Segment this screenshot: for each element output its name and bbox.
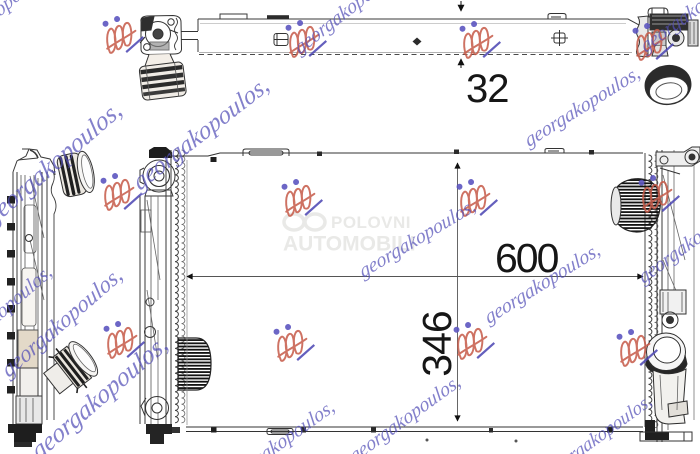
svg-text:32: 32	[466, 67, 509, 111]
svg-text:346: 346	[414, 311, 460, 376]
svg-text:POLOVNI: POLOVNI	[331, 213, 411, 232]
